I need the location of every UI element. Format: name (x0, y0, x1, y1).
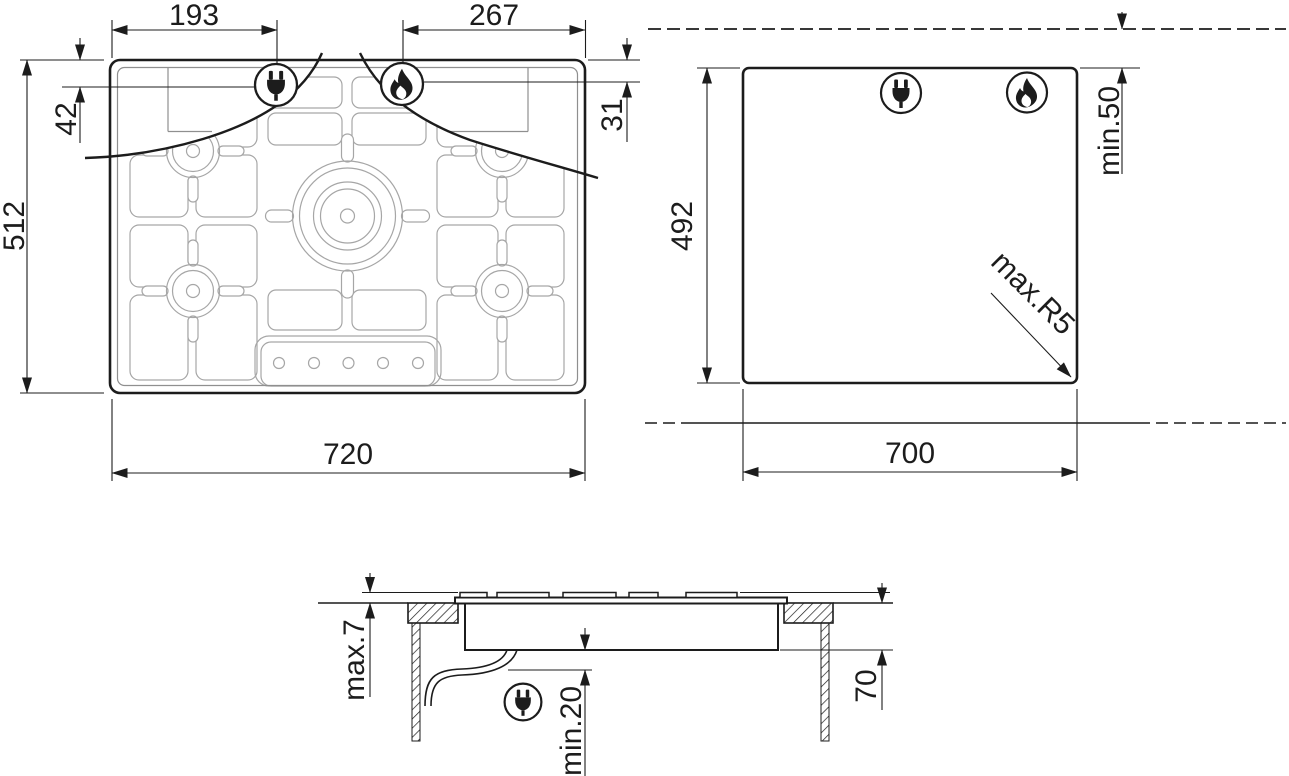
dim-label-flame-offset-y: 31 (596, 98, 629, 131)
drawing-svg: 193 267 42 31 512 720 (0, 0, 1289, 776)
cabinet-panel-right (821, 623, 829, 741)
cutout-view: 492 700 min.50 max.R5 (645, 12, 1286, 481)
dim-label-cutout-depth: 492 (666, 201, 699, 251)
power-plug-icon (881, 73, 921, 113)
power-plug-icon (255, 64, 297, 106)
dim-label-width: 720 (323, 438, 373, 471)
dim-label-depth: 512 (0, 201, 31, 251)
dim-label-cutout-width: 700 (885, 437, 935, 470)
dim-label-protrusion: max.7 (338, 619, 371, 701)
dim-label-flame-offset-x: 267 (469, 0, 519, 32)
gas-flame-icon (381, 63, 423, 105)
dim-label-plug-offset-x: 193 (169, 0, 219, 32)
hob-underbody (465, 604, 778, 651)
cabinet-panel-left (412, 623, 420, 741)
burner-caps (460, 593, 737, 598)
installation-drawing: 193 267 42 31 512 720 (0, 0, 1289, 776)
power-plug-icon (505, 684, 542, 721)
worktop-section-left (408, 603, 458, 623)
power-cable (425, 650, 517, 706)
dim-label-below-depth: 70 (850, 669, 883, 702)
dim-label-plug-offset-y: 42 (50, 102, 83, 135)
dim-label-clearance: min.20 (555, 686, 588, 776)
cutout-rect (743, 68, 1077, 383)
hob-top-view: 193 267 42 31 512 720 (0, 0, 640, 481)
worktop-section-right (784, 603, 833, 623)
dim-label-wall-clearance: min.50 (1093, 86, 1126, 176)
gas-flame-icon (1007, 73, 1047, 113)
side-section-view: max.7 min.20 70 (318, 573, 893, 776)
